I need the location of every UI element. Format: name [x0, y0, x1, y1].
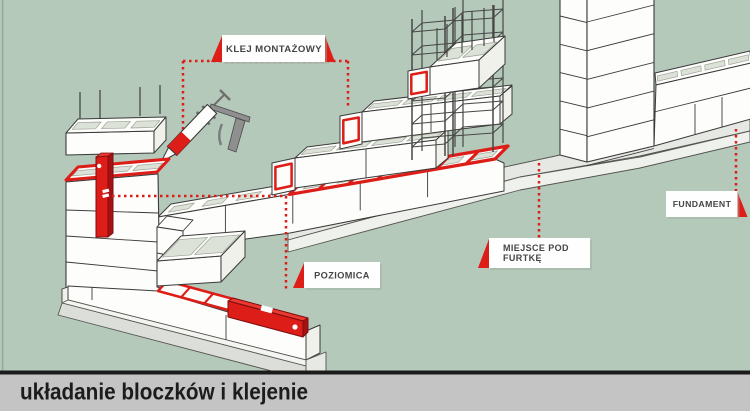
svg-text:FURTKĘ: FURTKĘ	[503, 253, 542, 263]
svg-text:MIEJSCE POD: MIEJSCE POD	[503, 243, 569, 253]
svg-text:KLEJ MONTAŻOWY: KLEJ MONTAŻOWY	[226, 44, 322, 55]
svg-text:FUNDAMENT: FUNDAMENT	[673, 199, 732, 209]
svg-text:POZIOMICA: POZIOMICA	[314, 270, 370, 280]
svg-text:układanie bloczków i klejenie: układanie bloczków i klejenie	[20, 379, 308, 405]
